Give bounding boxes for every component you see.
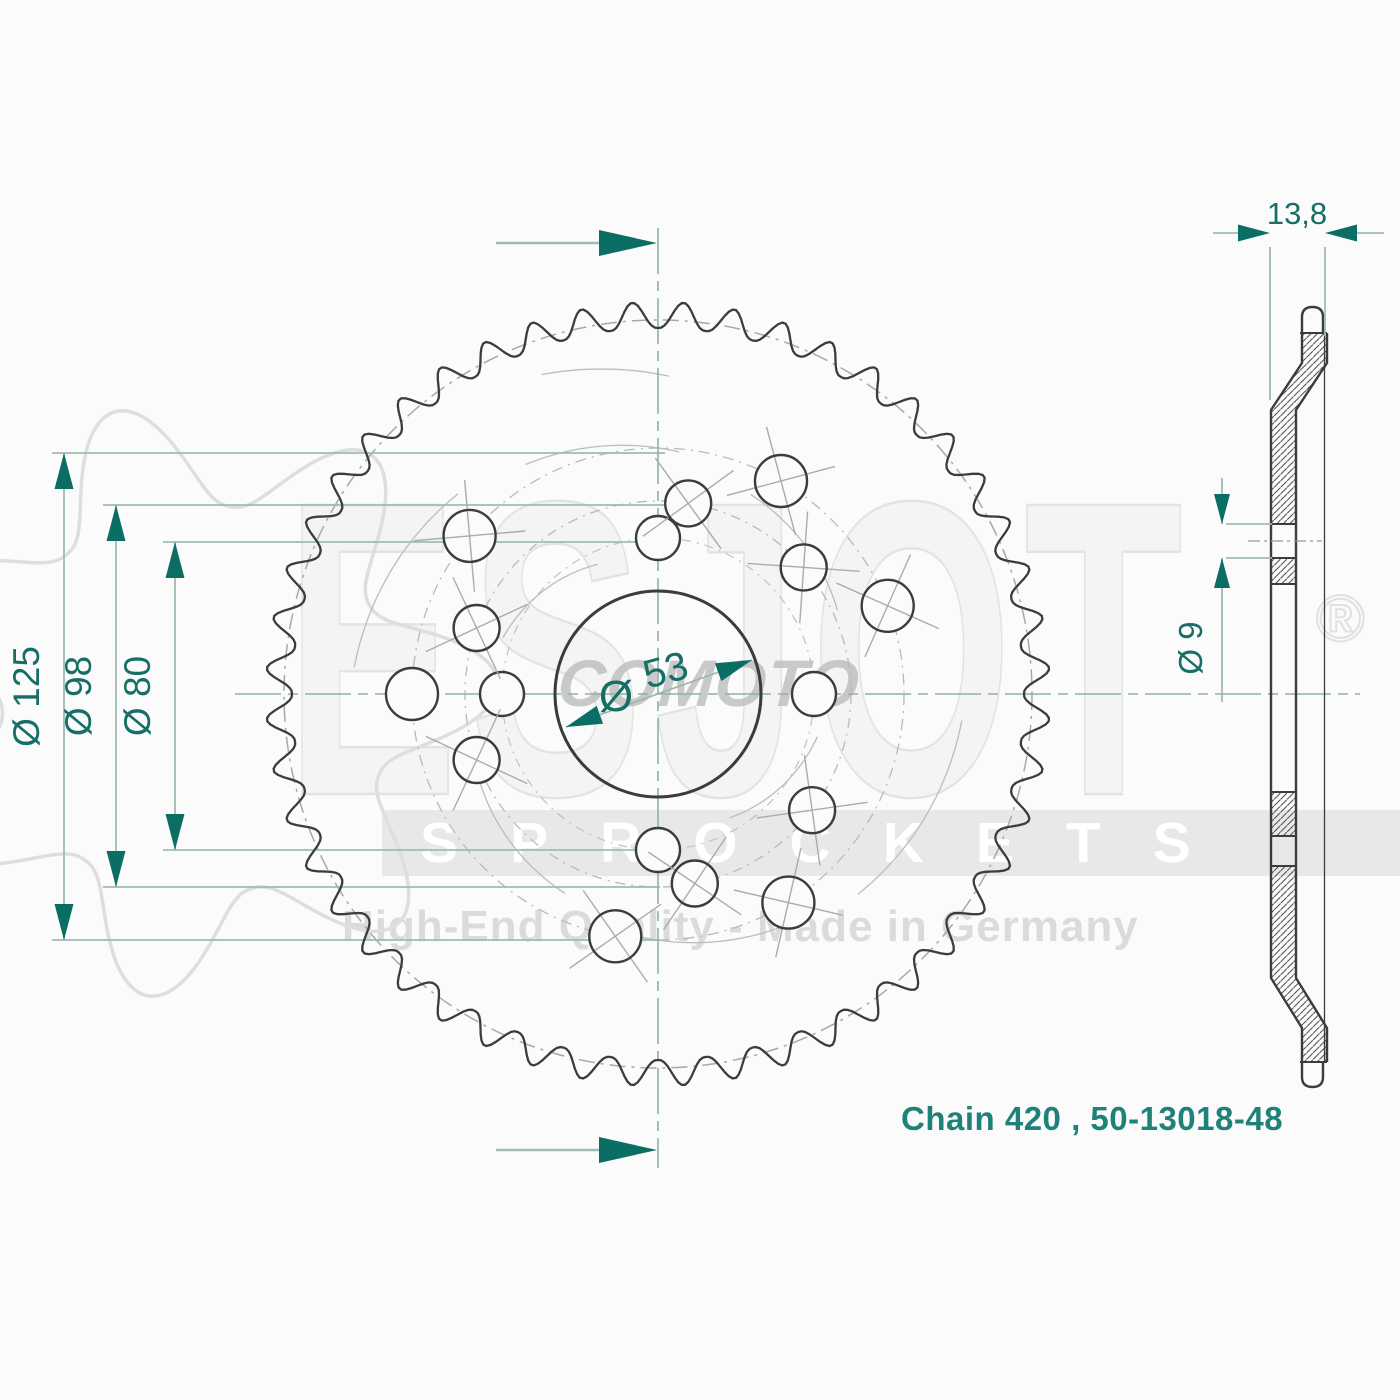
construction-arc bbox=[354, 494, 458, 668]
view-direction-arrow bbox=[599, 230, 657, 256]
tooth-profile-top bbox=[1302, 307, 1323, 333]
dimension-arrow-down bbox=[107, 851, 126, 887]
hatch-rim-top bbox=[1302, 333, 1327, 363]
diameter-dimension-label: Ø 80 bbox=[117, 656, 158, 736]
lightening-hole bbox=[480, 672, 524, 716]
bore-diameter-symbol: Ø bbox=[599, 672, 633, 721]
tooth-profile-bottom bbox=[1302, 1062, 1323, 1087]
dimension-arrow-up bbox=[55, 453, 74, 489]
dimension-arrow bbox=[1325, 225, 1357, 242]
lightening-hole bbox=[792, 672, 836, 716]
technical-drawing-svg: Ø 125Ø 98Ø 80Ø5313,8Ø 9 bbox=[0, 0, 1400, 1400]
diameter-dimension-label: Ø 125 bbox=[6, 646, 47, 747]
bore-diameter-value: 53 bbox=[638, 643, 692, 697]
hatch-slant-top bbox=[1271, 363, 1327, 410]
bore-dimension-arrow bbox=[566, 706, 603, 727]
dimension-arrow-up bbox=[107, 505, 126, 541]
bore-dimension-arrow bbox=[715, 660, 752, 681]
lightening-hole bbox=[636, 516, 680, 560]
hatch-rim-bottom bbox=[1302, 1028, 1327, 1062]
dimension-arrow-down bbox=[55, 904, 74, 940]
construction-arc bbox=[479, 778, 565, 894]
dimension-arrow-down bbox=[166, 814, 185, 850]
dimension-arrow bbox=[1238, 225, 1270, 242]
dimension-arrow-up bbox=[166, 542, 185, 578]
construction-arc bbox=[858, 721, 962, 895]
construction-arc bbox=[542, 369, 669, 376]
side-view-section: 13,8Ø 9 bbox=[1172, 196, 1384, 1087]
hatch-web-band bbox=[1271, 558, 1296, 584]
hatch-slant-bottom bbox=[1271, 978, 1327, 1028]
lightening-hole bbox=[636, 828, 680, 872]
dimension-arrow bbox=[1214, 558, 1230, 588]
dimension-arrow bbox=[1214, 494, 1230, 524]
lightening-hole bbox=[386, 668, 438, 720]
hatch-web-band bbox=[1271, 410, 1296, 524]
view-direction-arrow bbox=[599, 1137, 657, 1163]
width-dimension-label: 13,8 bbox=[1267, 196, 1327, 231]
hatch-web-band bbox=[1271, 792, 1296, 836]
hatch-web-band bbox=[1271, 866, 1296, 978]
section-outline-right bbox=[1296, 333, 1327, 1062]
hole-dimension-label: Ø 9 bbox=[1172, 621, 1209, 674]
part-code-label: Chain 420 , 50-13018-48 bbox=[901, 1100, 1283, 1138]
front-view: Ø 125Ø 98Ø 80Ø53 bbox=[6, 228, 1360, 1168]
drawing-page: ESJOT ® SPROCKETS High-End Quality - Mad… bbox=[0, 0, 1400, 1400]
diameter-dimension-label: Ø 98 bbox=[58, 656, 99, 736]
